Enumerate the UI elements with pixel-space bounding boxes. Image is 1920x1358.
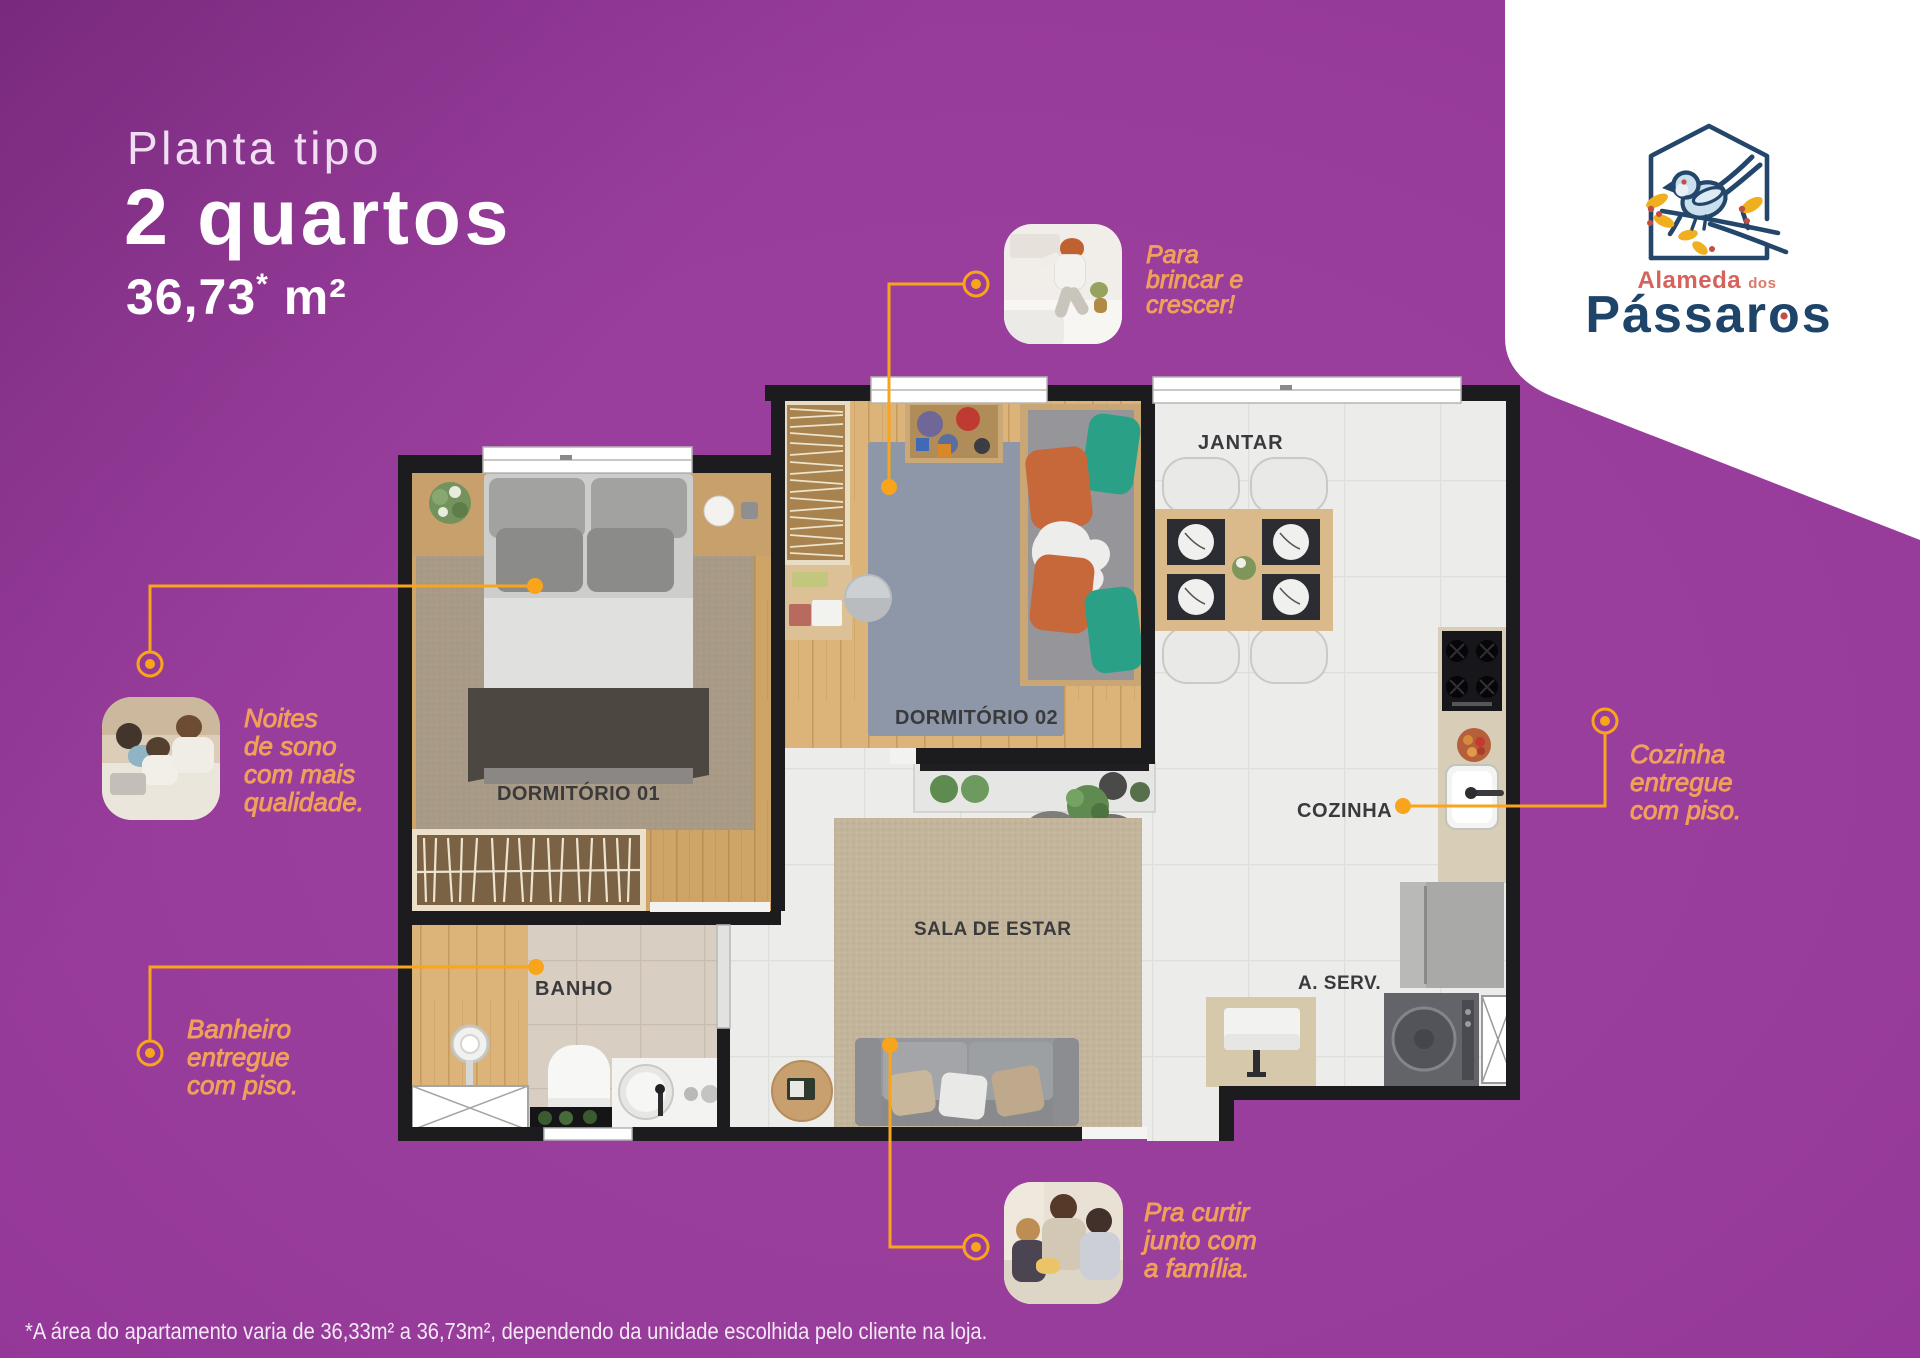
- svg-text:COZINHA: COZINHA: [1297, 800, 1392, 822]
- svg-text:JANTAR: JANTAR: [1198, 432, 1284, 454]
- svg-text:DORMITÓRIO 01: DORMITÓRIO 01: [497, 781, 660, 805]
- svg-text:SALA DE ESTAR: SALA DE ESTAR: [914, 919, 1071, 940]
- svg-text:DORMITÓRIO 02: DORMITÓRIO 02: [895, 705, 1058, 729]
- svg-text:BANHO: BANHO: [535, 978, 613, 1000]
- svg-text:A. SERV.: A. SERV.: [1298, 973, 1381, 994]
